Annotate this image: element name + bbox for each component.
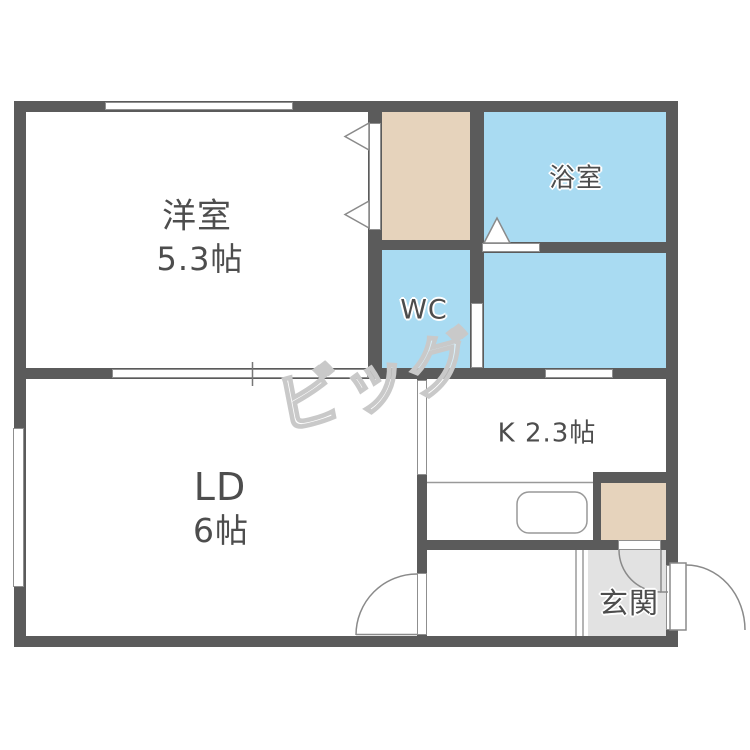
label-kitchen: K 2.3帖 [498,413,597,450]
entrance-inner-door-leaf [661,550,668,592]
floorplan-canvas: 洋室 5.3帖 浴室 WC K 2.3帖 LD 6帖 玄関 ビッグ [0,0,750,750]
label-toilet: WC [400,295,448,326]
label-western-room: 洋室 [162,189,232,238]
label-living-dining: LD [194,465,246,509]
ld-door-swing-arc [356,574,417,635]
front-door-swing-arc [686,565,745,630]
kitchen-sink [517,492,587,533]
label-bathroom: 浴室 [549,158,603,195]
label-western-room-size: 5.3帖 [157,234,244,280]
label-living-dining-size: 6帖 [193,504,249,552]
closet-door-arrow-icon [345,201,369,228]
label-entrance: 玄関 [599,580,659,622]
bathroom-door-triangle-icon [484,218,510,243]
front-door-leaf [670,563,686,630]
closet-door-arrow-icon [345,123,369,150]
